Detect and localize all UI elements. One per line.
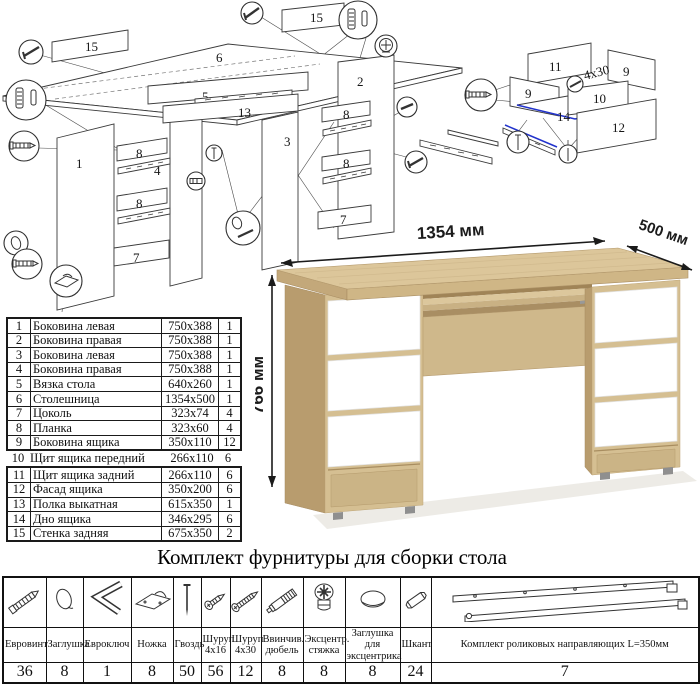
callout-confirmat-screw (12, 249, 42, 279)
part-number-label: 8 (343, 107, 350, 122)
plinth (331, 469, 417, 507)
wood-dowel-icon (404, 591, 426, 610)
drawer-front (595, 343, 677, 397)
part-number-label: 3 (284, 134, 291, 149)
table-row: 9Боковина ящика350x11012 (7, 435, 241, 450)
table-row: 15Стенка задняя675x3502 (7, 526, 241, 541)
cam-lock-icon (315, 584, 333, 610)
callout-screw (241, 2, 263, 24)
parts-table-lower: 11Щит ящика задний266x1106 12Фасад ящика… (6, 466, 242, 542)
drawer-front (595, 397, 677, 447)
width-dimension-label: 1354 мм (416, 220, 485, 243)
kit-title: Комплект фурнитуры для сборки стола (0, 545, 664, 570)
part-number-label: 14 (557, 109, 571, 124)
panel-11-drawer-back: 11 (528, 43, 591, 84)
screw-4x16-icon (203, 590, 226, 611)
part-number-label: 12 (612, 120, 625, 135)
part-number-label: 9 (623, 64, 630, 79)
screw-in-dowel-icon (265, 589, 296, 614)
panel-8-plank: 8 (117, 188, 167, 211)
dimension-height (268, 275, 276, 487)
table-row: 5Вязка стола640x2601 (7, 377, 241, 392)
callout-screw (405, 151, 427, 173)
callout-slide-tip (187, 172, 205, 190)
callout-cam-lock (375, 35, 397, 57)
drawer-slide-rail (118, 158, 170, 174)
screw-cap-icon (54, 587, 73, 610)
table-row: 8Планка323x604 (7, 421, 241, 436)
part-number-label: 13 (238, 105, 251, 120)
screw-4x30-icon (231, 588, 260, 613)
middle-section (423, 284, 592, 376)
nail-icon (184, 585, 191, 616)
part-number-label: 7 (133, 250, 140, 265)
confirmat-screw-icon (8, 588, 40, 614)
part-number-label: 9 (525, 86, 532, 101)
roller-slides-icon (453, 581, 687, 622)
table-row: 6Столешница1354x5001 (7, 391, 241, 406)
drawer-front (328, 355, 420, 411)
drawer-exploded-diagram: 11 9 9 10 14 12 4x30 (455, 40, 700, 187)
table-row: 11Щит ящика задний266x1106 (7, 467, 241, 482)
callout-dowel (559, 140, 577, 163)
modesty-panel (423, 306, 592, 376)
table-row: 12Фасад ящика350x2006 (7, 482, 241, 497)
table-row-10: 10 Щит ящика передний 266x110 6 (6, 451, 246, 466)
cam-cap-icon (361, 591, 385, 607)
table-row: 7Цоколь323x744 (7, 406, 241, 421)
table-row: 2Боковина правая750x3881 (7, 333, 241, 348)
table-row: 3Боковина левая750x3881 (7, 348, 241, 363)
panel-7-plinth: 7 (114, 240, 169, 266)
kit-quantities-row: 36 8 1 8 50 56 12 8 8 8 24 7 (3, 662, 699, 683)
part-number-label: 1 (76, 156, 83, 171)
height-dimension-label: 766 мм (255, 356, 267, 414)
part-number-label: 8 (136, 146, 143, 161)
callout-confirmat-screw (9, 131, 39, 161)
depth-dimension-label: 500 мм (636, 216, 690, 249)
panel-8-plank: 8 (117, 138, 167, 161)
callout-confirmat-screw (19, 40, 43, 64)
part-number-label: 10 (593, 91, 606, 106)
table-row: 13Полка выкатная615x3501 (7, 497, 241, 512)
callout-foot (50, 265, 82, 297)
table-row: 4Боковина правая750x3881 (7, 362, 241, 377)
callout-pin (397, 97, 417, 117)
table-row: 14Дно ящика346x2956 (7, 512, 241, 527)
left-pedestal (285, 285, 423, 513)
drawer-slide-rail (118, 208, 170, 224)
drawer-front (328, 295, 420, 355)
callout-dowel-and-pin (6, 80, 46, 120)
part-number-label: 15 (85, 39, 98, 54)
part-number-label: 2 (357, 74, 364, 89)
panel-15-left: 15 (52, 30, 128, 62)
hex-key-icon (97, 584, 121, 612)
callout-dowel-and-pin (339, 1, 377, 39)
right-pedestal (585, 280, 680, 475)
callout-nail (507, 131, 529, 153)
panel-15-right: 15 (282, 3, 344, 32)
hardware-kit-table: Евровинт Заглушка Евроключ Ножка Гвоздь … (2, 576, 700, 684)
parts-table-upper: 1Боковина левая750x3881 2Боковина правая… (6, 317, 242, 451)
kit-icons-row (3, 577, 699, 628)
drawer-front (595, 287, 677, 343)
part-number-label: 8 (343, 156, 350, 171)
assembled-desk-render: 1354 мм 500 мм 766 мм (255, 215, 700, 550)
assembly-sheet: { "assembled_view": { "width_label": "13… (0, 0, 700, 677)
part-number-label: 6 (216, 50, 223, 65)
plastic-foot-icon (136, 592, 170, 609)
drawer-front (328, 411, 420, 467)
callout-confirmat-screw (465, 79, 497, 111)
part-number-label: 11 (549, 59, 562, 74)
kit-labels-row: Евровинт Заглушка Евроключ Ножка Гвоздь … (3, 628, 699, 663)
callout-nail (206, 145, 222, 161)
parts-table: 1Боковина левая750x3881 2Боковина правая… (6, 317, 246, 542)
part-number-label: 15 (310, 10, 323, 25)
table-row: 1Боковина левая750x3881 (7, 318, 241, 333)
part-number-label: 8 (136, 196, 143, 211)
